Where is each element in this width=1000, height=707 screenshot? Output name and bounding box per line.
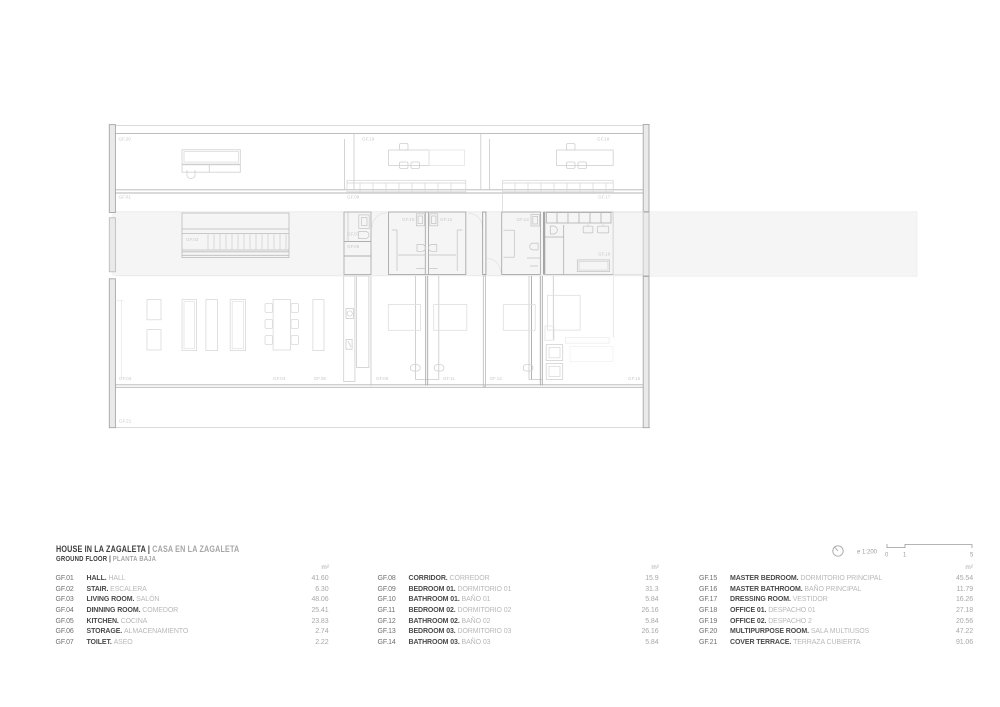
svg-text:5: 5: [970, 553, 974, 559]
svg-text:GF.14: GF.14: [517, 217, 530, 222]
svg-text:GF.09: GF.09: [376, 376, 389, 381]
svg-text:GF.15: GF.15: [628, 376, 641, 381]
svg-text:GF.18: GF.18: [597, 137, 610, 142]
svg-text:GF.02: GF.02: [186, 237, 199, 242]
svg-text:GF.16: GF.16: [598, 252, 611, 257]
svg-text:e 1:200: e 1:200: [857, 550, 878, 556]
svg-text:GF.04: GF.04: [273, 376, 286, 381]
svg-text:GF.05: GF.05: [314, 376, 327, 381]
svg-text:GF.01: GF.01: [119, 195, 132, 200]
svg-text:GF.11: GF.11: [443, 376, 455, 381]
svg-text:GF.03: GF.03: [119, 376, 132, 381]
svg-text:GF.07: GF.07: [347, 232, 360, 237]
svg-text:GF.19: GF.19: [362, 137, 375, 142]
svg-text:0: 0: [885, 553, 889, 559]
svg-text:GF.08: GF.08: [347, 195, 360, 200]
svg-text:GF.21: GF.21: [119, 419, 132, 424]
svg-text:GF.10: GF.10: [402, 217, 415, 222]
svg-text:GF.12: GF.12: [440, 217, 453, 222]
svg-text:GF.20: GF.20: [119, 137, 132, 142]
svg-text:GF.17: GF.17: [598, 195, 611, 200]
svg-text:GF.06: GF.06: [347, 244, 360, 249]
svg-text:1: 1: [903, 553, 907, 559]
svg-text:GF.13: GF.13: [490, 376, 503, 381]
